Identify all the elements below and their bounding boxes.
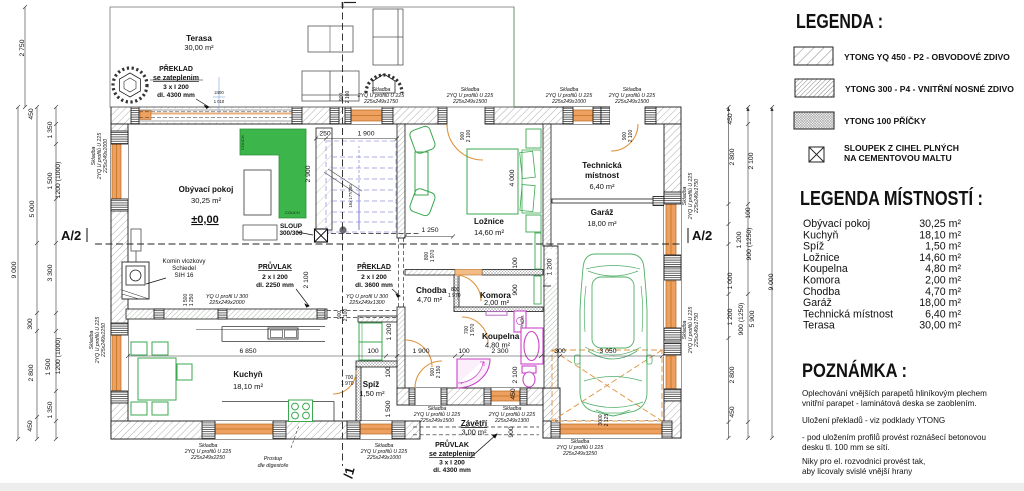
svg-text:2 800: 2 800 bbox=[729, 366, 736, 383]
svg-text:3 x I 200: 3 x I 200 bbox=[163, 84, 189, 91]
svg-text:6 850: 6 850 bbox=[239, 348, 256, 355]
svg-text:4,80 m²: 4,80 m² bbox=[925, 263, 961, 275]
svg-text:225x249x1000: 225x249x1000 bbox=[366, 455, 401, 461]
svg-text:300: 300 bbox=[27, 318, 34, 330]
svg-text:místnost: místnost bbox=[585, 171, 619, 180]
svg-text:3 x I 200: 3 x I 200 bbox=[439, 460, 465, 467]
svg-text:dl. 4300 mm: dl. 4300 mm bbox=[433, 467, 471, 474]
svg-text:1 200: 1 200 bbox=[547, 258, 554, 275]
svg-text:225x249x1300: 225x249x1300 bbox=[348, 300, 384, 306]
svg-text:1 970: 1 970 bbox=[341, 381, 354, 387]
svg-text:2 100: 2 100 bbox=[512, 366, 519, 383]
svg-text:2 x I 200: 2 x I 200 bbox=[262, 274, 288, 281]
svg-text:300: 300 bbox=[554, 348, 566, 355]
svg-text:2 100: 2 100 bbox=[748, 152, 755, 169]
svg-text:Terasa: Terasa bbox=[803, 320, 835, 332]
svg-text:Ložnice: Ložnice bbox=[803, 252, 840, 264]
svg-text:1 350: 1 350 bbox=[47, 401, 54, 418]
svg-text:1 000: 1 000 bbox=[727, 272, 734, 289]
svg-text:100: 100 bbox=[458, 348, 470, 355]
svg-text:225x249x1750: 225x249x1750 bbox=[694, 313, 700, 348]
svg-text:30,00 m²: 30,00 m² bbox=[919, 320, 961, 332]
svg-text:1 500: 1 500 bbox=[45, 358, 52, 375]
svg-text:POZNÁMKA :: POZNÁMKA : bbox=[802, 360, 907, 382]
svg-text:dl. 3600 mm: dl. 3600 mm bbox=[355, 282, 393, 289]
svg-text:1 900: 1 900 bbox=[357, 131, 374, 138]
svg-text:Koupelna: Koupelna bbox=[803, 263, 848, 275]
svg-text:2YQ U profilů U 225: 2YQ U profilů U 225 bbox=[488, 411, 536, 418]
svg-text:A/2: A/2 bbox=[692, 228, 712, 243]
svg-text:450: 450 bbox=[27, 420, 34, 432]
svg-text:225x249x2000: 225x249x2000 bbox=[103, 139, 109, 174]
svg-text:2YQ U profilů U 225: 2YQ U profilů U 225 bbox=[357, 92, 405, 99]
svg-text:2YQ U profilů U 225: 2YQ U profilů U 225 bbox=[608, 92, 656, 99]
svg-text:Kuchyň: Kuchyň bbox=[803, 229, 838, 241]
svg-text:900 (1250): 900 (1250) bbox=[738, 303, 745, 336]
svg-text:18,00 m²: 18,00 m² bbox=[587, 219, 617, 228]
svg-text:desku tl. 100 mm se sítí.: desku tl. 100 mm se sítí. bbox=[802, 443, 890, 452]
svg-text:3,00 m²: 3,00 m² bbox=[461, 428, 487, 437]
svg-text:Niky pro el. rozvodnici provés: Niky pro el. rozvodnici provést tak, bbox=[802, 457, 925, 466]
svg-text:225x249x1500: 225x249x1500 bbox=[614, 99, 649, 105]
svg-text:aby licovaly svislé vnější hra: aby licovaly svislé vnější hrany bbox=[802, 467, 913, 476]
svg-text:1 970: 1 970 bbox=[430, 250, 436, 263]
svg-text:30,25 m²: 30,25 m² bbox=[919, 218, 961, 230]
svg-text:225x249x1750: 225x249x1750 bbox=[363, 99, 398, 105]
svg-text:2YQ U profilů U 225: 2YQ U profilů U 225 bbox=[545, 92, 593, 99]
svg-text:dl. 2250 mm: dl. 2250 mm bbox=[256, 282, 294, 289]
svg-text:YTONG 100 PŘÍČKY: YTONG 100 PŘÍČKY bbox=[844, 115, 926, 126]
svg-text:2,00 m²: 2,00 m² bbox=[925, 275, 961, 287]
svg-text:18,10 m²: 18,10 m² bbox=[919, 229, 961, 241]
svg-text:2 100: 2 100 bbox=[343, 309, 349, 322]
svg-text:PŘEKLAD: PŘEKLAD bbox=[159, 64, 193, 73]
svg-text:±0,00: ±0,00 bbox=[191, 214, 218, 226]
svg-text:A/2: A/2 bbox=[61, 228, 81, 243]
svg-text:Komora: Komora bbox=[803, 275, 840, 287]
svg-text:1200 (1000): 1200 (1000) bbox=[55, 162, 62, 199]
svg-text:225x249x1500: 225x249x1500 bbox=[452, 99, 487, 105]
svg-text:Kuchyň: Kuchyň bbox=[233, 370, 262, 379]
svg-text:1 500: 1 500 bbox=[47, 172, 54, 189]
svg-text:30,00 m²: 30,00 m² bbox=[184, 43, 214, 52]
svg-text:9 000: 9 000 bbox=[11, 261, 18, 278]
svg-text:225x249x2000: 225x249x2000 bbox=[208, 300, 244, 306]
svg-text:2 x I 200: 2 x I 200 bbox=[361, 274, 387, 281]
svg-text:dl. 4300 mm: dl. 4300 mm bbox=[157, 92, 195, 99]
svg-text:14,60 m²: 14,60 m² bbox=[919, 252, 961, 264]
svg-text:5 000: 5 000 bbox=[29, 200, 36, 217]
svg-text:1 200: 1 200 bbox=[386, 323, 393, 340]
svg-text:Schiedel: Schiedel bbox=[172, 265, 196, 272]
svg-text:1 200: 1 200 bbox=[727, 308, 734, 325]
svg-text:Garáž: Garáž bbox=[591, 208, 614, 217]
svg-text:16x 177/280: 16x 177/280 bbox=[348, 184, 353, 208]
svg-text:2 900: 2 900 bbox=[305, 165, 312, 182]
svg-text:2YQ U profilů U 225: 2YQ U profilů U 225 bbox=[94, 317, 101, 365]
svg-text:1 350: 1 350 bbox=[47, 121, 54, 138]
svg-text:SIH 16: SIH 16 bbox=[175, 272, 194, 279]
svg-text:Obývací pokoj: Obývací pokoj bbox=[803, 218, 870, 230]
svg-text:2 100: 2 100 bbox=[628, 130, 634, 143]
svg-text:225x249x1000: 225x249x1000 bbox=[551, 99, 586, 105]
svg-text:2YQ U profilů U 225: 2YQ U profilů U 225 bbox=[446, 92, 494, 99]
svg-text:6,40 m²: 6,40 m² bbox=[589, 182, 615, 191]
svg-text:1 250: 1 250 bbox=[189, 294, 195, 307]
svg-text:Terasa: Terasa bbox=[186, 34, 212, 43]
svg-text:Technická místnost: Technická místnost bbox=[803, 308, 893, 320]
svg-text:450: 450 bbox=[727, 113, 734, 125]
svg-text:2 750: 2 750 bbox=[19, 39, 26, 56]
svg-text:30,25 m²: 30,25 m² bbox=[191, 196, 221, 205]
svg-text:2400: 2400 bbox=[214, 90, 224, 95]
svg-text:LEGENDA MÍSTNOSTÍ :: LEGENDA MÍSTNOSTÍ : bbox=[800, 187, 983, 210]
svg-text:YTONG 300 - P4 - VNITŘNÍ NOSNÉ: YTONG 300 - P4 - VNITŘNÍ NOSNÉ ZDIVO bbox=[845, 83, 1014, 94]
svg-text:4 000: 4 000 bbox=[509, 169, 516, 186]
svg-text:Chodba: Chodba bbox=[803, 286, 840, 298]
svg-text:Pračka: Pračka bbox=[520, 315, 525, 329]
svg-text:900: 900 bbox=[508, 426, 515, 438]
svg-text:6,40 m²: 6,40 m² bbox=[925, 308, 961, 320]
svg-text:1 900: 1 900 bbox=[412, 348, 429, 355]
svg-text:4,70 m²: 4,70 m² bbox=[925, 286, 961, 298]
svg-text:250: 250 bbox=[319, 131, 331, 138]
svg-text:2YQ U profilů U 225: 2YQ U profilů U 225 bbox=[556, 444, 604, 451]
svg-text:1 970: 1 970 bbox=[470, 324, 476, 337]
svg-text:SLOUP: SLOUP bbox=[280, 223, 303, 230]
svg-text:4,80 m²: 4,80 m² bbox=[485, 341, 511, 350]
svg-text:225x249x1750: 225x249x1750 bbox=[694, 179, 700, 214]
svg-text:2 800: 2 800 bbox=[729, 148, 736, 165]
svg-text:900 (1250): 900 (1250) bbox=[746, 228, 753, 261]
svg-text:Uložení překladů - viz podklad: Uložení překladů - viz podklady YTONG bbox=[802, 416, 945, 425]
svg-text:se zateplenim: se zateplenim bbox=[153, 75, 199, 82]
svg-text:225x249x2250: 225x249x2250 bbox=[190, 455, 225, 461]
svg-text:PŘEKLAD: PŘEKLAD bbox=[357, 262, 391, 271]
svg-text:1 500: 1 500 bbox=[385, 400, 392, 417]
svg-text:Prostup: Prostup bbox=[264, 456, 283, 462]
svg-text:2YQ U profilů U 225: 2YQ U profilů U 225 bbox=[360, 448, 408, 455]
svg-text:225x249x1300: 225x249x1300 bbox=[494, 418, 529, 424]
svg-text:2 100: 2 100 bbox=[466, 130, 472, 143]
svg-text:1,50 m²: 1,50 m² bbox=[925, 241, 961, 253]
svg-text:5 900: 5 900 bbox=[749, 310, 756, 327]
svg-text:SLOUPEK Z CIHEL PLNÝCH: SLOUPEK Z CIHEL PLNÝCH bbox=[844, 142, 959, 153]
svg-text:100: 100 bbox=[385, 366, 392, 378]
svg-text:Technická: Technická bbox=[582, 161, 622, 170]
svg-text:2,00 m²: 2,00 m² bbox=[484, 298, 510, 307]
svg-text:Spíž: Spíž bbox=[803, 241, 824, 253]
svg-text:2YQ U profilů U 225: 2YQ U profilů U 225 bbox=[687, 307, 694, 355]
svg-text:2 125: 2 125 bbox=[604, 414, 610, 427]
svg-text:4,70 m²: 4,70 m² bbox=[417, 295, 443, 304]
svg-text:225x249x1500: 225x249x1500 bbox=[419, 418, 454, 424]
svg-text:3 050: 3 050 bbox=[599, 348, 616, 355]
svg-text:2 100: 2 100 bbox=[345, 91, 351, 104]
svg-text:Komin vlozkovy: Komin vlozkovy bbox=[163, 258, 207, 265]
svg-text:Obývací pokoj: Obývací pokoj bbox=[179, 185, 234, 194]
svg-text:COUCH: COUCH bbox=[240, 135, 245, 150]
svg-text:225x249x2250: 225x249x2250 bbox=[101, 323, 107, 358]
svg-text:100: 100 bbox=[367, 348, 379, 355]
svg-text:300/300: 300/300 bbox=[279, 230, 303, 237]
svg-text:18,10 m²: 18,10 m² bbox=[233, 382, 263, 391]
svg-text:2YQ U profilů U 225: 2YQ U profilů U 225 bbox=[413, 411, 461, 418]
svg-text:Garáž: Garáž bbox=[803, 297, 832, 309]
svg-text:- pod uložením profilů provést: - pod uložením profilů provést roznášecí… bbox=[802, 433, 986, 442]
svg-text:1 010: 1 010 bbox=[214, 99, 225, 104]
svg-text:18,00 m²: 18,00 m² bbox=[919, 297, 961, 309]
svg-text:1 250: 1 250 bbox=[421, 227, 438, 234]
svg-text:225x249x3250: 225x249x3250 bbox=[562, 451, 597, 457]
svg-text:1 200: 1 200 bbox=[736, 231, 743, 248]
svg-text:YTONG YQ 450 - P2 - OBVODOVÉ Z: YTONG YQ 450 - P2 - OBVODOVÉ ZDIVO bbox=[844, 52, 1010, 62]
svg-text:14,60 m²: 14,60 m² bbox=[474, 228, 504, 237]
svg-text:900: 900 bbox=[512, 284, 519, 296]
svg-text:450: 450 bbox=[28, 108, 35, 120]
svg-text:se zateplenim: se zateplenim bbox=[429, 451, 475, 458]
svg-text:1 970: 1 970 bbox=[448, 293, 461, 299]
svg-text:9 000: 9 000 bbox=[768, 273, 775, 290]
svg-text:Oplechování vnějších parapetů: Oplechování vnějších parapetů hliníkovým… bbox=[802, 389, 987, 398]
svg-text:LEGENDA :: LEGENDA : bbox=[796, 11, 883, 33]
svg-text:3 300: 3 300 bbox=[47, 264, 54, 281]
svg-text:450: 450 bbox=[729, 406, 736, 418]
svg-text:2 800: 2 800 bbox=[28, 364, 35, 381]
svg-text:dle digestoře: dle digestoře bbox=[258, 463, 289, 469]
svg-text:vnitřní parapet - laminátová d: vnitřní parapet - laminátová deska se za… bbox=[802, 399, 977, 408]
svg-text:COUCH: COUCH bbox=[285, 210, 300, 215]
svg-text:Chodba: Chodba bbox=[416, 286, 447, 295]
svg-text:2 100: 2 100 bbox=[303, 271, 310, 288]
svg-text:100: 100 bbox=[745, 207, 752, 219]
svg-text:1,50 m²: 1,50 m² bbox=[359, 389, 385, 398]
svg-text:Ložnice: Ložnice bbox=[474, 217, 504, 226]
svg-text:2YQ U profilů U 225: 2YQ U profilů U 225 bbox=[687, 173, 694, 221]
svg-text:450: 450 bbox=[510, 388, 517, 400]
svg-text:100: 100 bbox=[512, 257, 519, 269]
svg-text:2YQ U profilů U 225: 2YQ U profilů U 225 bbox=[184, 448, 232, 455]
svg-text:2 150: 2 150 bbox=[436, 366, 442, 379]
svg-text:Spíž: Spíž bbox=[363, 380, 379, 389]
svg-text:1200 (1000): 1200 (1000) bbox=[55, 338, 62, 375]
svg-text:2YQ U profilů U 225: 2YQ U profilů U 225 bbox=[96, 133, 103, 181]
svg-text:NA CEMENTOVOU MALTU: NA CEMENTOVOU MALTU bbox=[844, 153, 952, 163]
